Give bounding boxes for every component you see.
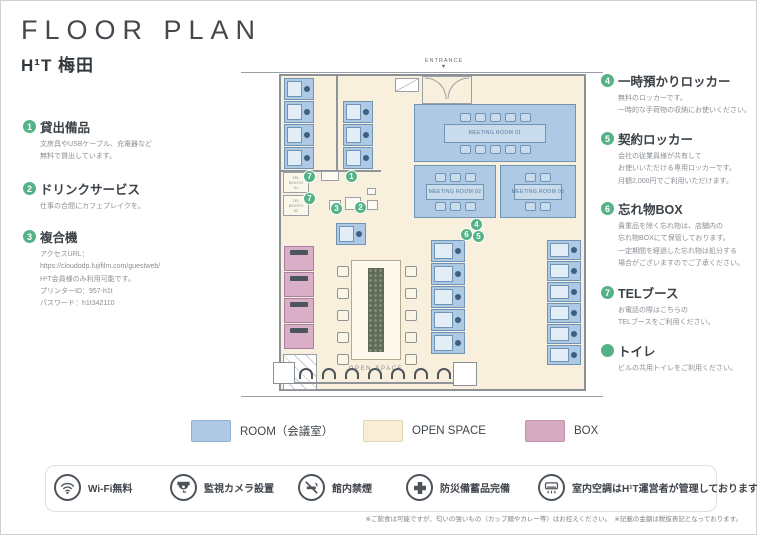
chair-row — [460, 145, 531, 154]
amenities-bar: Wi-Fi無料 監視カメラ設置 館内禁煙 防災備蓄品完備 室内空調はH¹T運 — [45, 465, 717, 512]
bullet-dot — [601, 344, 614, 357]
room-label: MEETING ROOM 01 — [469, 130, 522, 136]
pillar — [453, 362, 477, 386]
amenity-wifi: Wi-Fi無料 — [54, 474, 132, 501]
pillar — [273, 362, 295, 384]
focus-booth — [547, 282, 581, 302]
legend-label: ROOM（会議室） — [240, 423, 333, 439]
booth-column-a — [284, 78, 314, 169]
counter-furniture — [367, 188, 376, 195]
amenity-label: 監視カメラ設置 — [204, 480, 274, 495]
focus-booth — [431, 240, 465, 262]
counter-wall — [289, 382, 471, 384]
focus-booth — [547, 240, 581, 260]
chair-row — [435, 202, 476, 211]
box-column — [284, 246, 314, 349]
focus-booth — [284, 147, 314, 169]
plan-marker-2: 2 — [354, 201, 367, 214]
meeting-room-03: MEETING ROOM 03 — [500, 165, 576, 218]
box-room — [284, 324, 314, 349]
legend-swatch-room — [191, 420, 231, 442]
amenity-air-conditioner: 室内空調はH¹T運営者が管理しております — [538, 474, 757, 501]
legend-label: OPEN SPACE — [412, 425, 486, 437]
focus-booth — [431, 286, 465, 308]
plan-marker-6: 6 — [460, 228, 473, 241]
note-copier: 3 複合機 アクセスURL： https://cloudodp.fujifilm… — [23, 227, 241, 310]
note-description: 無料のロッカーです。 一時的な手荷物の収納にお使いください。 — [618, 93, 753, 118]
note-description: アクセスURL： https://cloudodp.fujifilm.com/g… — [40, 249, 241, 310]
amenity-label: Wi-Fi無料 — [88, 480, 132, 495]
legend-swatch-box — [525, 420, 565, 442]
box-room — [284, 298, 314, 323]
note-rental-equipment: 1 貸出備品 文房具やUSBケーブル、充電器など 無料で貸出しています。 — [23, 117, 241, 164]
focus-booth — [547, 324, 581, 344]
legend-swatch-open-space — [363, 420, 403, 442]
box-room — [284, 246, 314, 271]
chair-row — [460, 113, 531, 122]
wall — [336, 76, 338, 170]
note-tel-booth: 7 TELブース お電話の際はこちらの TELブースをご利用ください。 — [601, 283, 753, 330]
planter-icon — [368, 268, 384, 352]
focus-booth — [431, 332, 465, 354]
room-label: MEETING ROOM 03 — [512, 189, 565, 195]
number-badge: 3 — [23, 230, 36, 243]
note-description: 会社の従業員様が共有して お使いいただける専用ロッカーです。 月額2,000円で… — [618, 151, 753, 188]
focus-booth — [343, 101, 373, 123]
note-description: 文房具やUSBケーブル、充電器など 無料で貸出しています。 — [40, 139, 241, 164]
floor-plan-drawing: TEL BOOTH 01 TEL BOOTH 02 MEETING ROOM 0… — [279, 74, 586, 391]
number-badge: 1 — [23, 120, 36, 133]
number-badge: 4 — [601, 74, 614, 87]
note-title: 一時預かりロッカー — [618, 71, 731, 90]
chair-row — [525, 173, 551, 182]
number-badge: 6 — [601, 202, 614, 215]
air-conditioner-icon — [538, 474, 565, 501]
amenity-label: 防災備蓄品完備 — [440, 480, 510, 495]
note-title: 複合機 — [40, 227, 78, 246]
focus-booth — [284, 101, 314, 123]
note-toilet: トイレ ビルの共用トイレをご利用ください。 — [601, 341, 753, 375]
note-title: 忘れ物BOX — [618, 199, 683, 218]
plan-marker-4: 4 — [470, 218, 483, 231]
entry-closet — [395, 78, 419, 92]
note-description: 仕事の合間にカフェブレイクを。 — [40, 201, 241, 213]
meeting-table: MEETING ROOM 03 — [514, 184, 562, 200]
chair-row — [435, 173, 476, 182]
meeting-table: MEETING ROOM 01 — [444, 124, 546, 143]
focus-booth — [431, 263, 465, 285]
door-swing-icon — [423, 77, 471, 103]
focus-booth — [336, 223, 366, 245]
plan-marker-5: 5 — [472, 230, 485, 243]
meeting-table: MEETING ROOM 02 — [426, 184, 484, 200]
focus-booth — [547, 303, 581, 323]
open-space-chairs-right — [405, 266, 417, 365]
booth-column-d — [547, 240, 581, 365]
amenity-label: 室内空調はH¹T運営者が管理しております — [572, 480, 757, 495]
note-temporary-locker: 4 一時預かりロッカー 無料のロッカーです。 一時的な手荷物の収納にお使いくださ… — [601, 71, 753, 118]
focus-booth — [343, 124, 373, 146]
bottom-wall-line — [241, 396, 603, 397]
note-lost-and-found-box: 6 忘れ物BOX 貴重品を除く忘れ物は、店舗内の 忘れ物BOXにて保管しておりま… — [601, 199, 753, 270]
chair-row — [525, 202, 551, 211]
box-room — [284, 272, 314, 297]
plan-marker-1: 1 — [345, 170, 358, 183]
counter-furniture — [321, 171, 339, 181]
plan-marker-7: 7 — [303, 192, 316, 205]
first-aid-icon — [406, 474, 433, 501]
wifi-icon — [54, 474, 81, 501]
page-title: FLOOR PLAN — [21, 15, 262, 46]
note-title: 貸出備品 — [40, 117, 90, 136]
brand-location: H¹T 梅田 — [21, 51, 94, 76]
floor-plan-page: { "header": { "title": "FLOOR PLAN", "br… — [0, 0, 757, 535]
meeting-room-02: MEETING ROOM 02 — [414, 165, 496, 218]
note-description: 貴重品を除く忘れ物は、店舗内の 忘れ物BOXにて保管しております。 一定期間を経… — [618, 221, 753, 270]
note-title: トイレ — [618, 341, 656, 360]
amenity-camera: 監視カメラ設置 — [170, 474, 274, 501]
focus-booth — [431, 309, 465, 331]
counter-furniture — [367, 200, 378, 210]
number-badge: 2 — [23, 182, 36, 195]
legend-label: BOX — [574, 425, 598, 437]
counter-seats — [299, 368, 451, 379]
focus-booth — [284, 78, 314, 100]
booth-column-c — [431, 240, 465, 354]
plan-marker-3: 3 — [330, 202, 343, 215]
amenity-no-smoking: 館内禁煙 — [298, 474, 372, 501]
note-title: ドリンクサービス — [40, 179, 140, 198]
note-title: 契約ロッカー — [618, 129, 693, 148]
top-wall-line — [241, 72, 603, 73]
note-description: お電話の際はこちらの TELブースをご利用ください。 — [618, 305, 753, 330]
number-badge: 7 — [601, 286, 614, 299]
entrance-arrow-icon: ▼ — [441, 64, 447, 70]
number-badge: 5 — [601, 132, 614, 145]
no-smoking-icon — [298, 474, 325, 501]
focus-booth — [547, 261, 581, 281]
entrance-label: ENTRANCE ▼ — [409, 58, 479, 70]
legend-open-space: OPEN SPACE — [363, 420, 486, 442]
legend-box: BOX — [525, 420, 598, 442]
entrance-vestibule — [422, 76, 472, 104]
focus-booth — [547, 345, 581, 365]
booth-column-b — [343, 101, 373, 169]
note-drink-service: 2 ドリンクサービス 仕事の合間にカフェブレイクを。 — [23, 179, 241, 213]
note-contract-locker: 5 契約ロッカー 会社の従業員様が共有して お使いいただける専用ロッカーです。 … — [601, 129, 753, 188]
open-space-chairs-left — [337, 266, 349, 365]
footnote: ※ご飲食は可能ですが、匂いの強いもの（カップ麺やカレー等）はお控えください。 ※… — [366, 513, 742, 523]
plan-marker-7: 7 — [303, 170, 316, 183]
focus-booth — [284, 124, 314, 146]
amenity-first-aid: 防災備蓄品完備 — [406, 474, 510, 501]
focus-booth — [343, 147, 373, 169]
amenity-label: 館内禁煙 — [332, 480, 372, 495]
note-description: ビルの共用トイレをご利用ください。 — [618, 363, 753, 375]
note-title: TELブース — [618, 283, 678, 302]
camera-icon — [170, 474, 197, 501]
room-label: MEETING ROOM 02 — [429, 189, 482, 195]
legend-room: ROOM（会議室） — [191, 420, 333, 442]
meeting-room-01: MEETING ROOM 01 — [414, 104, 576, 162]
